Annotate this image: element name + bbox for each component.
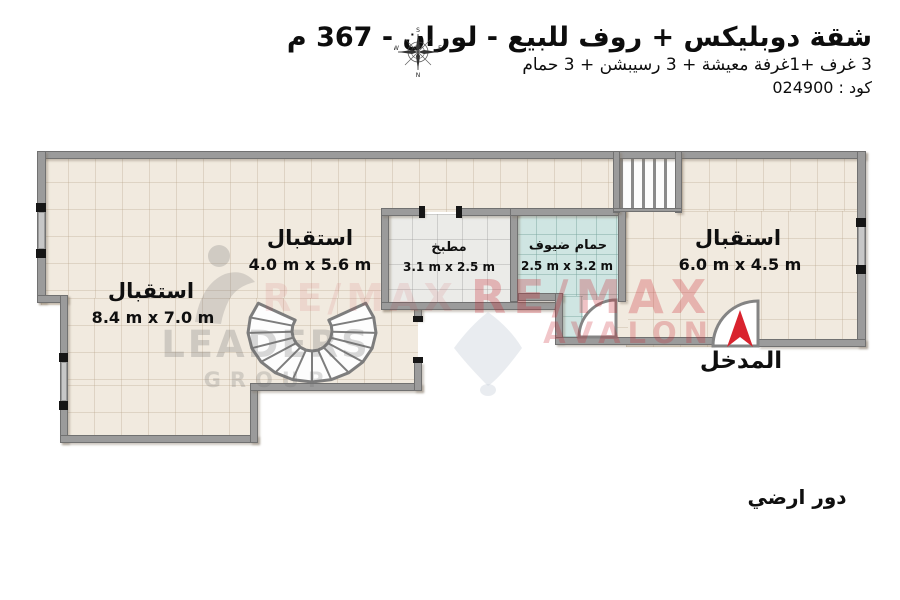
entrance-label: المدخل	[700, 348, 782, 374]
window-mark	[36, 249, 46, 258]
doorframe-mark	[419, 206, 425, 218]
compass-left-letter: W	[394, 45, 399, 52]
wall-stair-shaft-right	[675, 151, 682, 213]
room-dims: 3.1 m x 2.5 m	[403, 260, 495, 274]
floor-bottom-left-room	[67, 385, 256, 439]
compass-top-letter: S	[416, 27, 420, 34]
window-mark	[36, 203, 46, 212]
room-label: استقبال	[267, 226, 353, 250]
room-label: حمام ضيوف	[529, 238, 607, 253]
window-right	[859, 227, 864, 265]
room-label: استقبال	[695, 226, 781, 250]
window-mark	[59, 401, 68, 410]
wall-corridor-lower	[414, 362, 422, 391]
doorframe-mark	[413, 357, 423, 363]
room-dims: 4.0 m x 5.6 m	[249, 255, 372, 274]
doorframe-mark	[456, 206, 462, 218]
wall-step-vertical	[250, 383, 258, 443]
wall-top	[37, 151, 866, 159]
floor-door-patch	[614, 300, 628, 340]
straight-staircase	[620, 158, 675, 208]
floor-right-top	[682, 155, 862, 215]
wall-kitchen-top-a	[381, 208, 424, 216]
compass-icon: S N W E	[394, 26, 442, 78]
room-label: استقبال	[108, 279, 194, 303]
room-label: مطبخ	[431, 240, 466, 255]
wall-entry-bottom-right	[758, 339, 866, 347]
wall-bath-right	[618, 208, 626, 302]
page-subtitle: 3 غرف +1غرفة معيشة + 3 رسيبشن + 3 حمام	[287, 55, 872, 75]
header: شقة دوبليكس + روف للبيع - لوران - 367 م …	[287, 22, 872, 97]
floor-level-label: دور ارضي	[747, 485, 846, 509]
wall-stair-shaft-bottom	[613, 208, 682, 212]
room-dims: 8.4 m x 7.0 m	[92, 308, 215, 327]
balloon-watermark	[440, 300, 550, 400]
compass-bottom-letter: N	[416, 72, 421, 78]
doorframe-mark	[413, 316, 423, 322]
compass-right-letter: E	[438, 45, 442, 52]
bath-door-arc	[579, 300, 616, 337]
wall-bath-lobby-left	[555, 293, 563, 343]
floor-bath-lobby	[561, 296, 583, 341]
wall-bath-top	[510, 208, 626, 216]
wall-bottom-left	[60, 435, 258, 443]
window-mark	[59, 353, 68, 362]
page-title: شقة دوبليكس + روف للبيع - لوران - 367 م	[287, 22, 872, 53]
window-mark	[856, 265, 866, 274]
wall-kitchen-top-b	[458, 208, 518, 216]
wall-kitchen-bottom	[381, 302, 557, 310]
room-dims: 2.5 m x 3.2 m	[521, 259, 613, 273]
room-dims: 6.0 m x 4.5 m	[679, 255, 802, 274]
window-mark	[856, 218, 866, 227]
wall-kitchen-right	[510, 208, 518, 302]
floor-guest-bath	[516, 214, 622, 300]
window-left-upper	[39, 213, 44, 248]
listing-code: كود : 024900	[287, 78, 872, 97]
wall-stair-shaft-left	[613, 151, 620, 213]
window-left-lower	[62, 363, 66, 400]
wall-middle-bottom	[250, 383, 422, 391]
floorplan-page: شقة دوبليكس + روف للبيع - لوران - 367 م …	[0, 0, 900, 600]
wall-entry-bottom-left	[555, 337, 713, 345]
wall-kitchen-left	[381, 208, 389, 310]
